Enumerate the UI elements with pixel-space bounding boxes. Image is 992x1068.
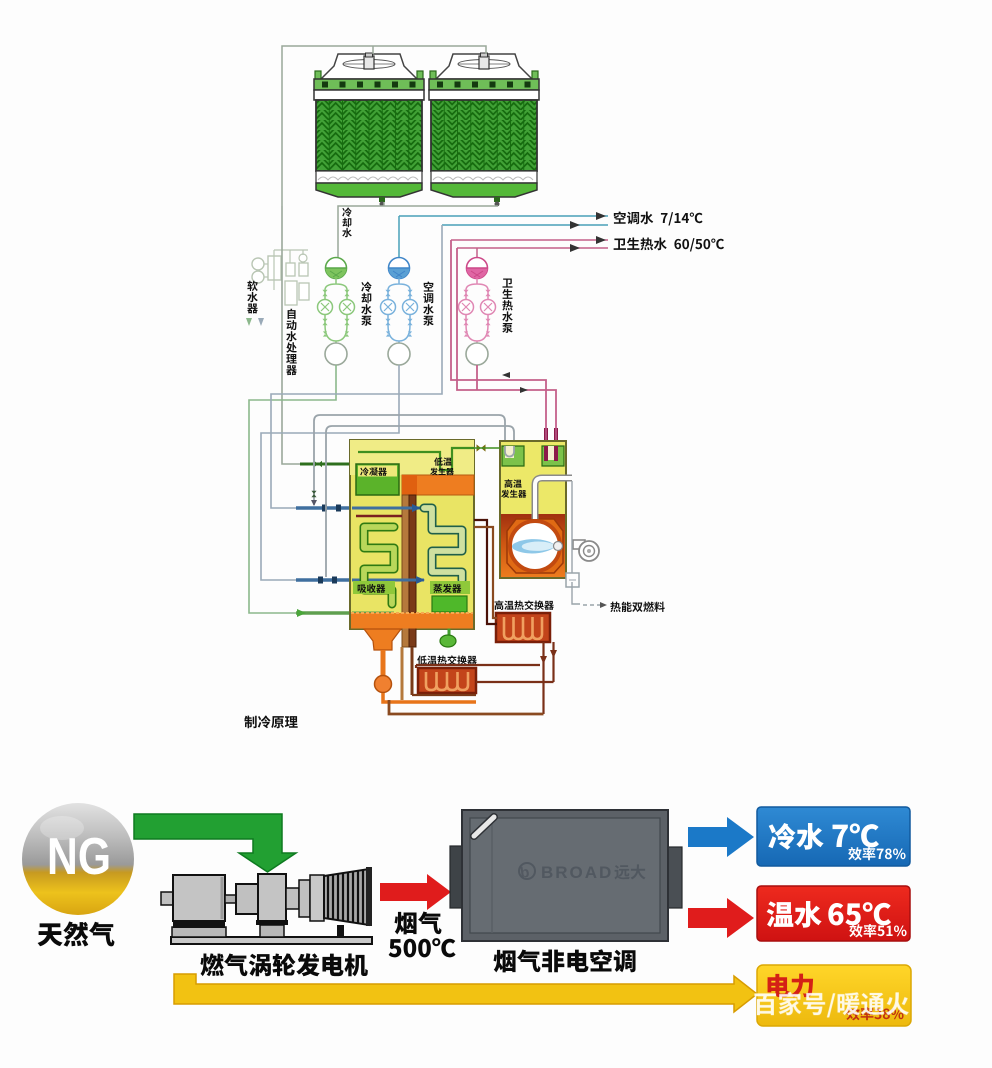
svg-text:BROAD: BROAD <box>541 863 613 882</box>
svg-text:NG: NG <box>47 828 111 886</box>
